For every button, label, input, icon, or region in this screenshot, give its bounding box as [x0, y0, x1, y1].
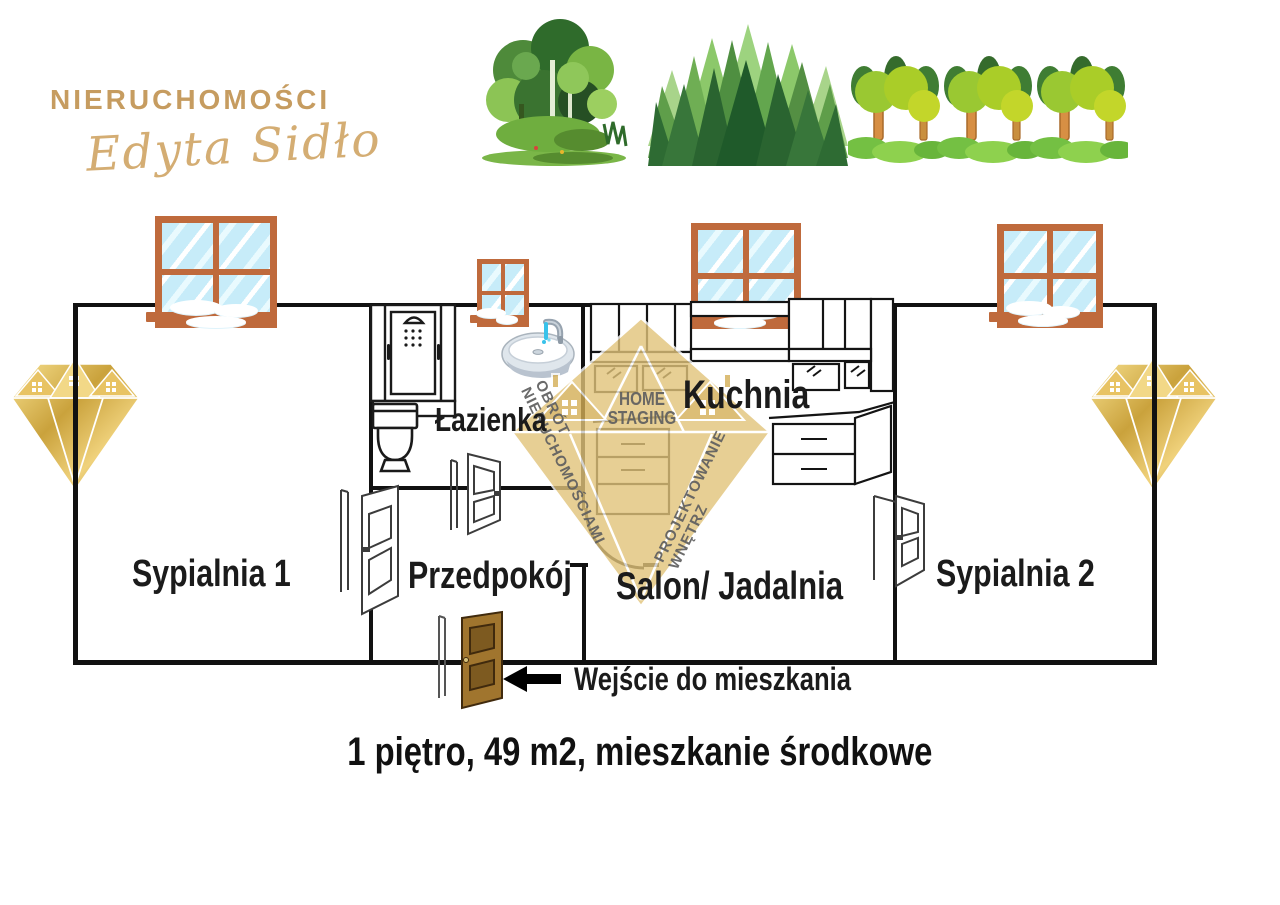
- snow: [1018, 315, 1068, 326]
- watermark-home: HOME: [605, 390, 680, 409]
- room-label-lazienka: Łazienka: [435, 401, 547, 439]
- room-label-sypialnia-1: Sypialnia 1: [132, 553, 291, 596]
- watermark-staging: STAGING: [605, 409, 680, 428]
- snow: [214, 304, 258, 317]
- wall-left: [73, 303, 78, 665]
- room-label-kuchnia: Kuchnia: [683, 373, 809, 418]
- room-label-sypialnia-2: Sypialnia 2: [936, 553, 1095, 596]
- snow: [186, 316, 246, 328]
- entrance-label: Wejście do mieszkania: [574, 661, 851, 698]
- brand-owner-signature: Edyta Sidło: [85, 112, 383, 182]
- entrance-door-icon: [432, 610, 510, 710]
- wall-right: [1152, 303, 1157, 665]
- interior-door-icon: [446, 452, 508, 540]
- floor-info-text: 1 piętro, 49 m2, mieszkanie środkowe: [347, 730, 932, 775]
- flyer-canvas: NIERUCHOMOŚCI Edyta Sidło: [0, 0, 1280, 905]
- interior-door-icon: [336, 484, 406, 616]
- room-label-salon-jadalnia: Salon/ Jadalnia: [616, 565, 843, 609]
- brand-name: NIERUCHOMOŚCI: [50, 84, 330, 116]
- tree-row-clipart: [848, 52, 1128, 164]
- room-label-przedpokoj: Przedpokój: [408, 555, 572, 598]
- arrow-left-icon: [503, 666, 561, 692]
- forest-clipart: [478, 8, 630, 168]
- pine-forest-clipart: [648, 18, 848, 168]
- interior-door-icon: [866, 488, 930, 588]
- toilet-icon: [371, 402, 429, 474]
- floor-info-caption: 1 piętro, 49 m2, mieszkanie środkowe: [0, 730, 1280, 775]
